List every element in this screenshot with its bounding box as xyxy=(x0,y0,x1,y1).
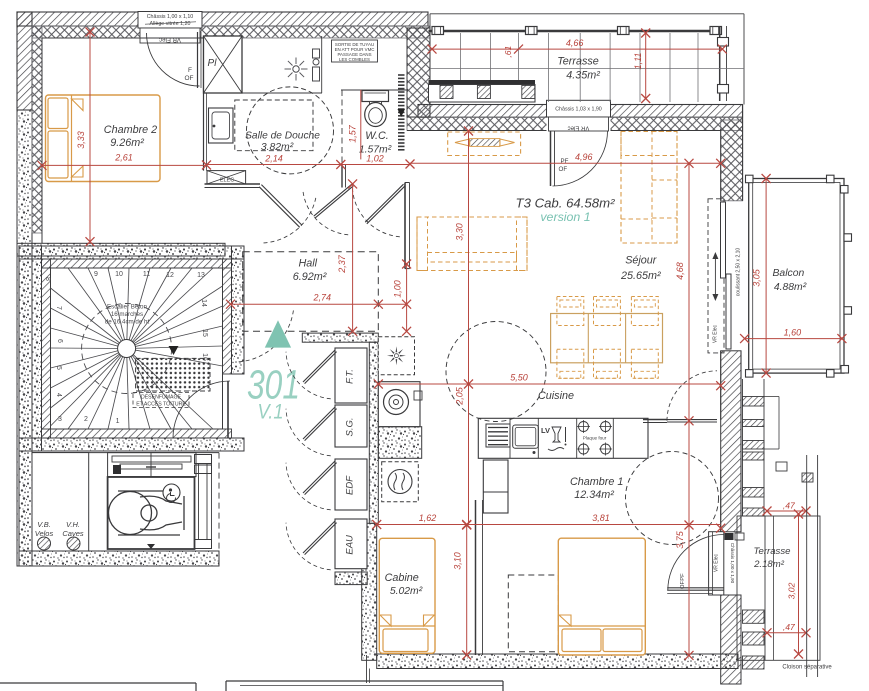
svg-text:Séjour: Séjour xyxy=(625,255,657,267)
svg-text:3,75: 3,75 xyxy=(675,530,685,549)
svg-text:10: 10 xyxy=(115,271,123,278)
svg-text:3,10: 3,10 xyxy=(453,552,463,570)
svg-text:Châssis 1,00 x 1,10: Châssis 1,00 x 1,10 xyxy=(147,14,194,20)
svg-text:3,05: 3,05 xyxy=(752,268,762,287)
svg-text:T3 Cab. 64.58m²: T3 Cab. 64.58m² xyxy=(516,196,616,211)
svg-text:,47: ,47 xyxy=(783,622,796,632)
svg-text:6.92m²: 6.92m² xyxy=(293,271,327,283)
svg-text:EAU: EAU xyxy=(345,535,356,555)
svg-text:VR Elec: VR Elec xyxy=(713,324,719,343)
svg-text:ELEC: ELEC xyxy=(220,178,234,184)
svg-text:2,14: 2,14 xyxy=(264,153,283,163)
svg-text:2,61: 2,61 xyxy=(114,153,133,163)
svg-text:V.B.: V.B. xyxy=(37,520,51,529)
svg-text:5.02m²: 5.02m² xyxy=(390,586,423,597)
svg-text:Cloison séparative: Cloison séparative xyxy=(782,665,832,671)
svg-text:F.T.: F.T. xyxy=(345,369,356,384)
svg-text:ET ACCÈS TOITURE: ET ACCÈS TOITURE xyxy=(136,401,186,408)
svg-text:5: 5 xyxy=(55,366,62,370)
svg-text:14: 14 xyxy=(200,299,207,307)
svg-text:version 1: version 1 xyxy=(540,210,590,224)
svg-text:4,96: 4,96 xyxy=(575,152,593,162)
svg-text:4.35m²: 4.35m² xyxy=(566,70,600,82)
svg-text:Hall: Hall xyxy=(298,258,317,270)
svg-text:V.H.: V.H. xyxy=(66,520,80,529)
svg-text:5,50: 5,50 xyxy=(510,373,528,383)
svg-text:2,37: 2,37 xyxy=(337,254,347,274)
svg-text:OF: OF xyxy=(680,581,686,590)
svg-text:3: 3 xyxy=(58,416,62,423)
svg-text:Chambre 2: Chambre 2 xyxy=(104,124,157,136)
svg-text:OF: OF xyxy=(184,75,193,82)
svg-text:15: 15 xyxy=(201,329,208,337)
svg-text:3,81: 3,81 xyxy=(592,513,610,523)
svg-text:VR Elec: VR Elec xyxy=(159,36,181,42)
svg-text:25.65m²: 25.65m² xyxy=(620,270,661,282)
svg-text:2: 2 xyxy=(84,416,88,423)
svg-text:1,11: 1,11 xyxy=(633,53,643,70)
svg-text:W.C.: W.C. xyxy=(365,130,389,142)
svg-text:1,57: 1,57 xyxy=(348,124,358,143)
svg-text:LV: LV xyxy=(541,426,550,435)
svg-text:Cuisine: Cuisine xyxy=(538,390,574,402)
svg-text:2.18m²: 2.18m² xyxy=(753,559,785,570)
svg-text:S.G.: S.G. xyxy=(345,417,356,436)
svg-text:13: 13 xyxy=(197,272,205,279)
svg-text:Plaque four: Plaque four xyxy=(583,436,607,441)
svg-text:,47: ,47 xyxy=(783,500,796,510)
svg-text:1: 1 xyxy=(116,418,120,425)
svg-text:9: 9 xyxy=(94,271,98,278)
svg-text:1,02: 1,02 xyxy=(366,153,384,163)
svg-text:7: 7 xyxy=(55,306,62,310)
svg-text:9.26m²: 9.26m² xyxy=(110,137,144,149)
svg-text:Terrasse: Terrasse xyxy=(557,56,599,68)
svg-text:DÉSENFUMAGE: DÉSENFUMAGE xyxy=(141,394,182,401)
svg-text:3,33: 3,33 xyxy=(76,131,86,149)
svg-text:OF: OF xyxy=(559,166,568,173)
svg-text:F: F xyxy=(188,67,192,74)
svg-text:1,60: 1,60 xyxy=(784,327,802,337)
svg-text:4.88m²: 4.88m² xyxy=(774,282,807,293)
svg-text:Terrasse: Terrasse xyxy=(754,546,791,557)
svg-text:PF: PF xyxy=(561,158,569,165)
svg-text:3.82m²: 3.82m² xyxy=(261,142,294,153)
svg-text:Chambre 1: Chambre 1 xyxy=(570,476,623,488)
svg-text:4,66: 4,66 xyxy=(566,38,584,48)
svg-text:LES COMBLES: LES COMBLES xyxy=(339,57,370,62)
svg-text:coulissant 2,50 x 2,10: coulissant 2,50 x 2,10 xyxy=(736,248,742,297)
svg-text:6: 6 xyxy=(56,339,63,343)
svg-text:1,62: 1,62 xyxy=(419,513,437,523)
svg-text:VR Elec: VR Elec xyxy=(714,553,720,572)
svg-text:4,68: 4,68 xyxy=(675,262,685,280)
svg-text:Salle de Douche: Salle de Douche xyxy=(245,131,320,142)
svg-text:12: 12 xyxy=(166,272,174,279)
svg-text:,61: ,61 xyxy=(503,46,513,58)
svg-text:de 16.4cm de ht: de 16.4cm de ht xyxy=(105,319,150,326)
svg-text:VR Elec: VR Elec xyxy=(568,125,590,131)
svg-text:V.1: V.1 xyxy=(258,400,284,423)
svg-text:11: 11 xyxy=(143,271,150,278)
svg-text:16 marches: 16 marches xyxy=(111,311,143,318)
svg-text:3,30: 3,30 xyxy=(455,223,465,241)
svg-text:3,02: 3,02 xyxy=(787,582,797,599)
svg-text:Pl: Pl xyxy=(208,58,218,69)
svg-text:Escalier Béton: Escalier Béton xyxy=(107,304,147,311)
svg-text:EDF: EDF xyxy=(345,475,356,495)
svg-text:Balcon: Balcon xyxy=(773,268,805,279)
svg-text:4: 4 xyxy=(55,393,62,397)
svg-text:2,05: 2,05 xyxy=(455,386,465,406)
svg-text:Châssis 1,00 x 1,90: Châssis 1,00 x 1,90 xyxy=(730,543,735,584)
svg-text:8: 8 xyxy=(44,277,51,281)
svg-text:12.34m²: 12.34m² xyxy=(574,489,614,501)
svg-text:Cabine: Cabine xyxy=(385,572,419,584)
svg-text:2,74: 2,74 xyxy=(313,293,332,303)
svg-text:PF: PF xyxy=(680,573,686,581)
svg-text:1,00: 1,00 xyxy=(393,280,403,298)
svg-text:Châssis 1,03 x 1,90: Châssis 1,03 x 1,90 xyxy=(555,107,602,113)
